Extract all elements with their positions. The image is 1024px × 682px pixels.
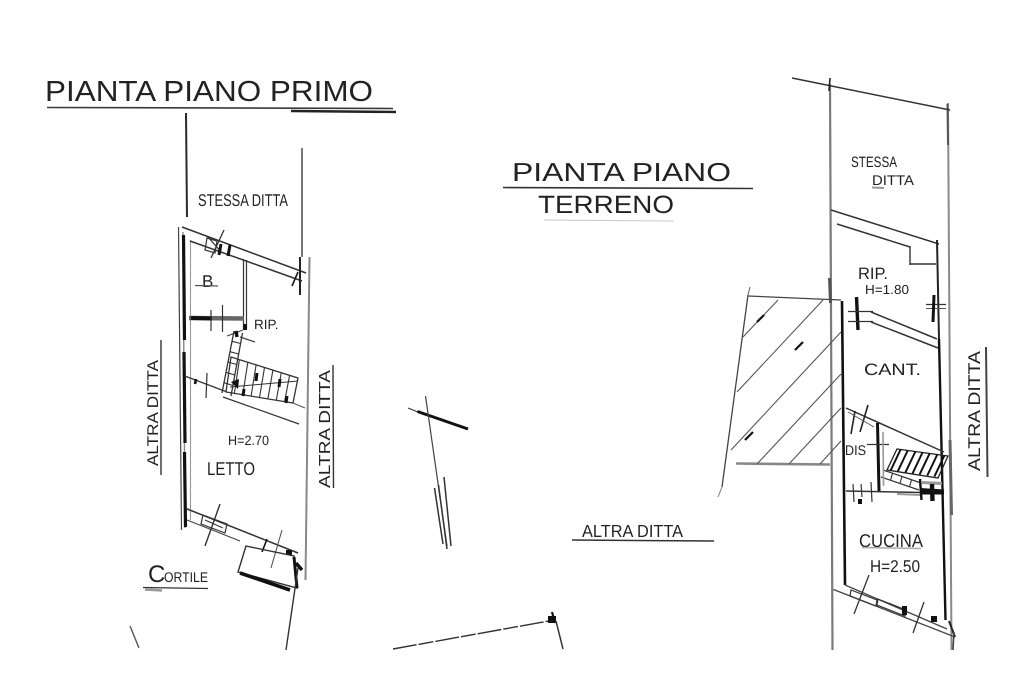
svg-text:B: B (202, 272, 213, 291)
svg-text:STESSA: STESSA (851, 154, 897, 171)
svg-text:LETTO: LETTO (207, 458, 255, 479)
svg-text:H=2.70: H=2.70 (228, 433, 269, 448)
svg-text:TERRENO: TERRENO (538, 191, 674, 219)
svg-text:DIS: DIS (845, 442, 866, 458)
svg-text:RIP.: RIP. (254, 317, 279, 332)
svg-text:ALTRA DITTA: ALTRA DITTA (317, 370, 334, 488)
svg-text:ORTILE: ORTILE (164, 569, 208, 585)
svg-text:C: C (148, 561, 165, 588)
svg-text:RIP.: RIP. (858, 265, 888, 283)
svg-text:CANT.: CANT. (864, 361, 921, 379)
svg-text:ALTRA DITTA: ALTRA DITTA (145, 359, 162, 466)
svg-text:PIANTA PIANO: PIANTA PIANO (512, 157, 731, 187)
svg-text:H=2.50: H=2.50 (870, 557, 920, 576)
svg-text:STESSA DITTA: STESSA DITTA (198, 191, 288, 210)
svg-text:ALTRA DITTA: ALTRA DITTA (965, 350, 984, 471)
svg-text:DITTA: DITTA (872, 172, 915, 188)
svg-text:PIANTA PIANO PRIMO: PIANTA PIANO PRIMO (45, 76, 373, 108)
svg-text:H=1.80: H=1.80 (865, 282, 909, 297)
svg-text:ALTRA DITTA: ALTRA DITTA (582, 521, 683, 541)
